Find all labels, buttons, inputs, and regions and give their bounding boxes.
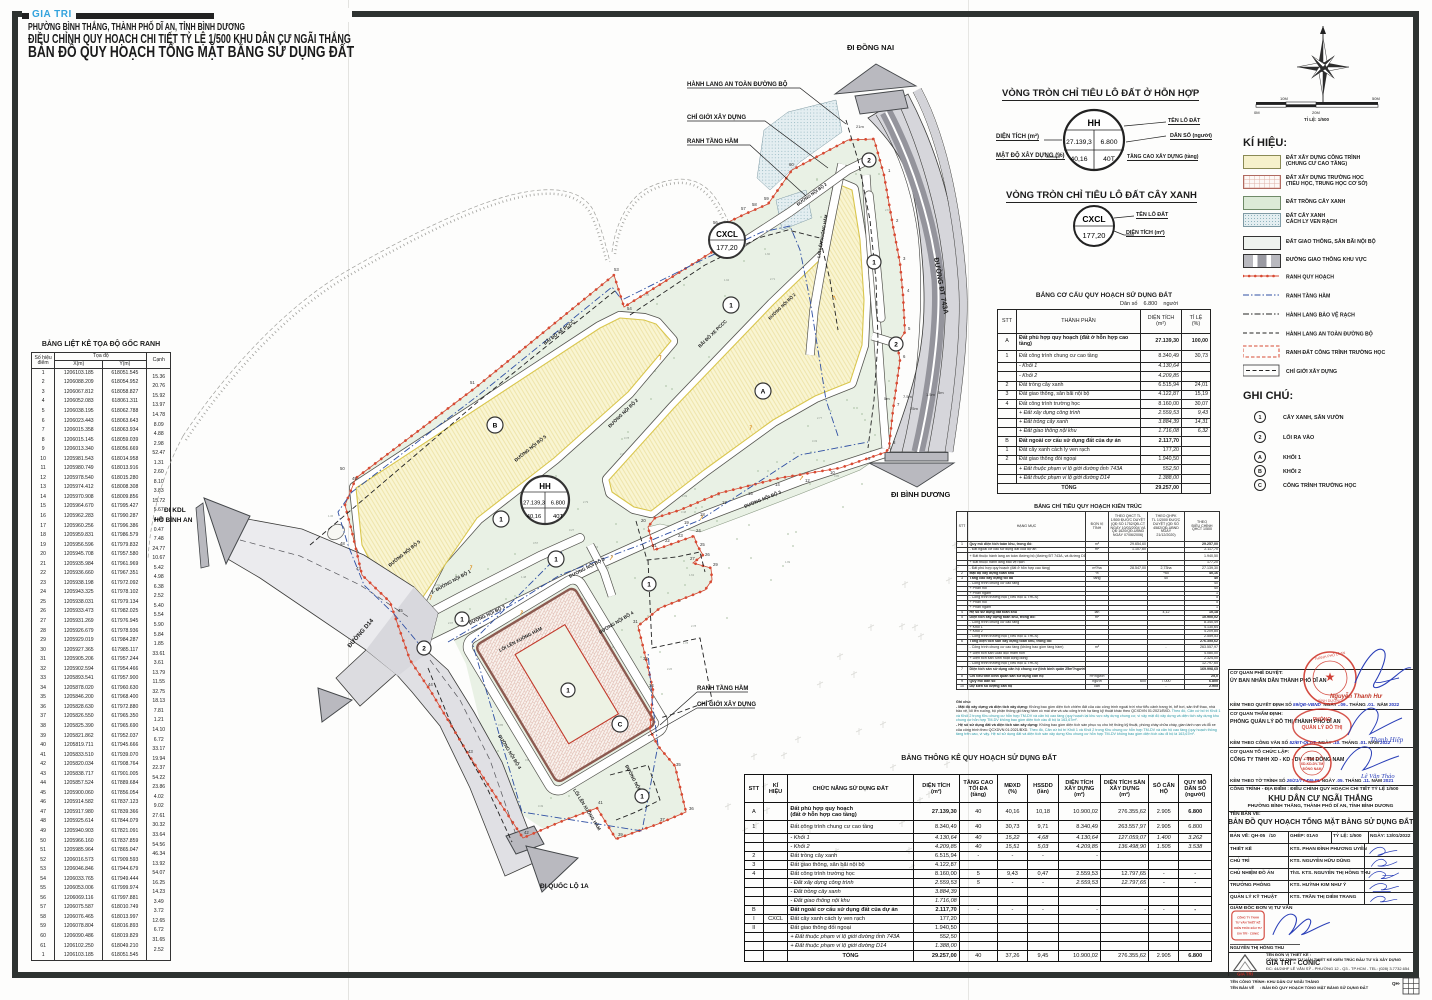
- svg-text:51: 51: [470, 380, 475, 385]
- svg-text:45: 45: [398, 608, 403, 613]
- svg-text:20M: 20M: [1312, 110, 1320, 115]
- svg-text:24: 24: [696, 528, 701, 533]
- svg-text:HỒ BÌNH AN: HỒ BÌNH AN: [154, 514, 193, 524]
- svg-text:33: 33: [643, 656, 648, 661]
- svg-text:48: 48: [340, 541, 345, 546]
- svg-text:TƯ VẤN THIẾT KẾ: TƯ VẤN THIẾT KẾ: [1236, 920, 1261, 925]
- svg-text:6: 6: [903, 354, 906, 359]
- svg-text:3.78: 3.78: [624, 436, 630, 440]
- svg-text:54: 54: [627, 306, 632, 311]
- svg-text:1.5m: 1.5m: [926, 392, 936, 397]
- svg-text:2.26: 2.26: [667, 667, 673, 671]
- svg-text:29: 29: [713, 562, 718, 567]
- svg-text:47: 47: [356, 566, 361, 571]
- svg-text:25: 25: [700, 542, 705, 547]
- svg-text:6.800: 6.800: [551, 501, 566, 507]
- svg-text:HH: HH: [1088, 118, 1101, 128]
- svg-text:2: 2: [1259, 435, 1262, 441]
- svg-text:C: C: [1258, 483, 1262, 489]
- svg-text:4: 4: [907, 288, 910, 293]
- svg-text:★: ★: [1325, 670, 1336, 684]
- svg-text:CHỈ GIỚI XÂY DỰNG: CHỈ GIỚI XÂY DỰNG: [1286, 367, 1337, 375]
- svg-text:5: 5: [908, 326, 911, 331]
- svg-text:21: 21: [652, 543, 657, 548]
- svg-text:3.33: 3.33: [812, 439, 818, 443]
- svg-text:RANH TẦNG HẦM: RANH TẦNG HẦM: [697, 685, 748, 692]
- svg-text:50M: 50M: [1372, 96, 1380, 101]
- svg-text:Lê Văn Thảo: Lê Văn Thảo: [1360, 773, 1395, 780]
- svg-text:34: 34: [649, 683, 654, 688]
- svg-text:2.07: 2.07: [448, 621, 454, 625]
- svg-text:A: A: [1258, 455, 1262, 461]
- svg-text:3.57: 3.57: [533, 541, 539, 545]
- svg-text:5m: 5m: [938, 390, 944, 395]
- svg-text:A: A: [761, 388, 766, 395]
- svg-text:1.36: 1.36: [328, 514, 334, 518]
- svg-text:1.99: 1.99: [785, 560, 791, 564]
- svg-text:1: 1: [872, 259, 876, 266]
- svg-text:20: 20: [641, 518, 646, 523]
- svg-text:HÀNH LANG AN TOÀN ĐƯỜNG BỘ: HÀNH LANG AN TOÀN ĐƯỜNG BỘ: [1286, 330, 1373, 338]
- svg-text:5m: 5m: [884, 396, 890, 401]
- svg-text:18: 18: [700, 512, 705, 517]
- svg-text:39: 39: [618, 832, 623, 837]
- svg-text:XD-KD-DV-TM: XD-KD-DV-TM: [1301, 762, 1324, 766]
- svg-text:15: 15: [748, 491, 753, 496]
- svg-text:42: 42: [524, 830, 529, 835]
- svg-text:CHỈ GIỚI XÂY DỰNG: CHỈ GIỚI XÂY DỰNG: [687, 113, 746, 121]
- svg-text:37: 37: [660, 817, 665, 822]
- svg-text:7.5m: 7.5m: [903, 394, 913, 399]
- svg-text:35: 35: [676, 762, 681, 767]
- svg-text:40T: 40T: [553, 514, 563, 520]
- svg-text:27: 27: [690, 556, 695, 561]
- svg-text:10: 10: [830, 470, 835, 475]
- svg-text:2.77: 2.77: [817, 416, 823, 420]
- svg-text:3.85: 3.85: [498, 723, 504, 727]
- svg-text:B: B: [1258, 469, 1262, 475]
- svg-text:6.800: 6.800: [1100, 139, 1117, 146]
- svg-text:HÀNH LANG AN TOÀN ĐƯỜNG BỘ: HÀNH LANG AN TOÀN ĐƯỜNG BỘ: [687, 80, 788, 88]
- svg-text:2: 2: [896, 218, 899, 223]
- svg-text:1: 1: [460, 616, 464, 623]
- svg-text:ĐI BÌNH DƯƠNG: ĐI BÌNH DƯƠNG: [891, 490, 950, 499]
- svg-text:1: 1: [554, 556, 558, 563]
- svg-text:0M: 0M: [1254, 110, 1260, 115]
- svg-text:1.94: 1.94: [724, 278, 730, 282]
- svg-text:59: 59: [764, 196, 769, 201]
- svg-text:KIẾN TRÚC ĐẦU TƯ: KIẾN TRÚC ĐẦU TƯ: [1234, 925, 1262, 930]
- svg-text:PHÒNG: PHÒNG: [1313, 715, 1331, 723]
- svg-text:1: 1: [729, 302, 733, 309]
- svg-text:RANH QUY HOẠCH: RANH QUY HOẠCH: [1286, 275, 1334, 281]
- svg-text:HH: HH: [539, 482, 551, 491]
- svg-text:40,16: 40,16: [527, 514, 542, 520]
- svg-text:QUẢN LÝ ĐÔ THỊ: QUẢN LÝ ĐÔ THỊ: [1302, 723, 1343, 731]
- svg-text:44: 44: [428, 682, 433, 687]
- svg-text:1.63: 1.63: [689, 573, 695, 577]
- svg-text:CÔNG TY TNHH: CÔNG TY TNHH: [1237, 914, 1259, 919]
- svg-text:58: 58: [752, 202, 757, 207]
- svg-text:KHỐI 2: KHỐI 2: [1283, 468, 1301, 475]
- svg-text:40T: 40T: [1103, 156, 1115, 163]
- svg-text:KHỐI 1: KHỐI 1: [1283, 454, 1301, 461]
- svg-text:ĐI KDL: ĐI KDL: [164, 507, 186, 514]
- svg-text:1: 1: [566, 687, 570, 694]
- svg-text:ĐI ĐỒNG NAI: ĐI ĐỒNG NAI: [847, 42, 894, 52]
- svg-text:1: 1: [499, 516, 503, 523]
- svg-text:31: 31: [633, 619, 638, 624]
- svg-text:25m: 25m: [910, 406, 918, 411]
- svg-text:177,20: 177,20: [1083, 231, 1106, 240]
- svg-text:27.139,3: 27.139,3: [523, 501, 545, 507]
- svg-text:LỐI RA VÀO: LỐI RA VÀO: [1283, 434, 1314, 441]
- svg-text:2.78: 2.78: [691, 624, 697, 628]
- svg-text:50: 50: [340, 466, 345, 471]
- svg-text:C: C: [618, 721, 623, 728]
- svg-text:CHỈ GIỚI XÂY DỰNG: CHỈ GIỚI XÂY DỰNG: [697, 700, 756, 708]
- svg-text:TỈ LỆ: 1/500: TỈ LỆ: 1/500: [1304, 115, 1330, 122]
- svg-text:41: 41: [598, 800, 603, 805]
- svg-text:57: 57: [741, 206, 746, 211]
- svg-text:RANH ĐẤT CÔNG TRÌNH TRƯỜNG HỌC: RANH ĐẤT CÔNG TRÌNH TRƯỜNG HỌC: [1286, 348, 1385, 356]
- svg-text:17: 17: [722, 500, 727, 505]
- svg-text:RANH TẦNG HẦM: RANH TẦNG HẦM: [687, 138, 738, 145]
- svg-text:21m: 21m: [856, 124, 864, 129]
- svg-text:2: 2: [894, 341, 898, 348]
- svg-text:60: 60: [789, 162, 794, 167]
- svg-text:1.60: 1.60: [765, 252, 771, 256]
- svg-text:2.71: 2.71: [770, 277, 776, 281]
- svg-text:CÔNG TRÌNH TRƯỜNG HỌC: CÔNG TRÌNH TRƯỜNG HỌC: [1283, 481, 1357, 489]
- svg-text:1: 1: [888, 168, 891, 173]
- svg-text:ĐÔNG NAM: ĐÔNG NAM: [1303, 766, 1322, 771]
- svg-text:3: 3: [903, 256, 906, 261]
- svg-text:GIA TRÍ: GIA TRÍ: [1237, 971, 1254, 976]
- svg-text:CÔNG TY: CÔNG TY: [1304, 756, 1320, 761]
- svg-text:26: 26: [705, 552, 710, 557]
- svg-text:27.139,3: 27.139,3: [1066, 139, 1092, 146]
- svg-text:2: 2: [867, 157, 871, 164]
- svg-text:36: 36: [689, 806, 694, 811]
- svg-text:10M: 10M: [1280, 96, 1288, 101]
- svg-text:7: 7: [897, 402, 900, 407]
- svg-text:B: B: [493, 422, 498, 429]
- svg-text:43: 43: [468, 749, 473, 754]
- svg-text:GIA TRÍ - CONIC: GIA TRÍ - CONIC: [1237, 931, 1259, 936]
- svg-text:1: 1: [647, 581, 651, 588]
- svg-text:RANH TẦNG HẦM: RANH TẦNG HẦM: [1286, 293, 1330, 300]
- svg-text:3.48: 3.48: [681, 510, 687, 514]
- svg-text:CÂY XANH, SÂN VƯỜN: CÂY XANH, SÂN VƯỜN: [1283, 413, 1344, 421]
- svg-text:177,20: 177,20: [716, 245, 738, 252]
- svg-text:1: 1: [1259, 415, 1262, 421]
- svg-text:22: 22: [665, 538, 670, 543]
- svg-text:2.79: 2.79: [583, 500, 589, 504]
- svg-text:49: 49: [352, 476, 357, 481]
- svg-text:19: 19: [684, 520, 689, 525]
- svg-text:CXCL: CXCL: [1082, 214, 1105, 224]
- svg-text:53: 53: [614, 267, 619, 272]
- svg-text:1: 1: [640, 793, 644, 800]
- svg-text:12: 12: [805, 478, 810, 483]
- svg-text:2: 2: [422, 645, 426, 652]
- svg-text:3.49: 3.49: [538, 804, 544, 808]
- svg-text:HÀNH LANG BẢO VỆ RẠCH: HÀNH LANG BẢO VỆ RẠCH: [1286, 311, 1355, 319]
- svg-text:23: 23: [678, 533, 683, 538]
- svg-text:3.27: 3.27: [569, 528, 575, 532]
- svg-text:40,16: 40,16: [1070, 156, 1087, 163]
- svg-text:14: 14: [775, 482, 780, 487]
- svg-text:CXCL: CXCL: [716, 230, 738, 239]
- svg-text:1.48: 1.48: [521, 575, 527, 579]
